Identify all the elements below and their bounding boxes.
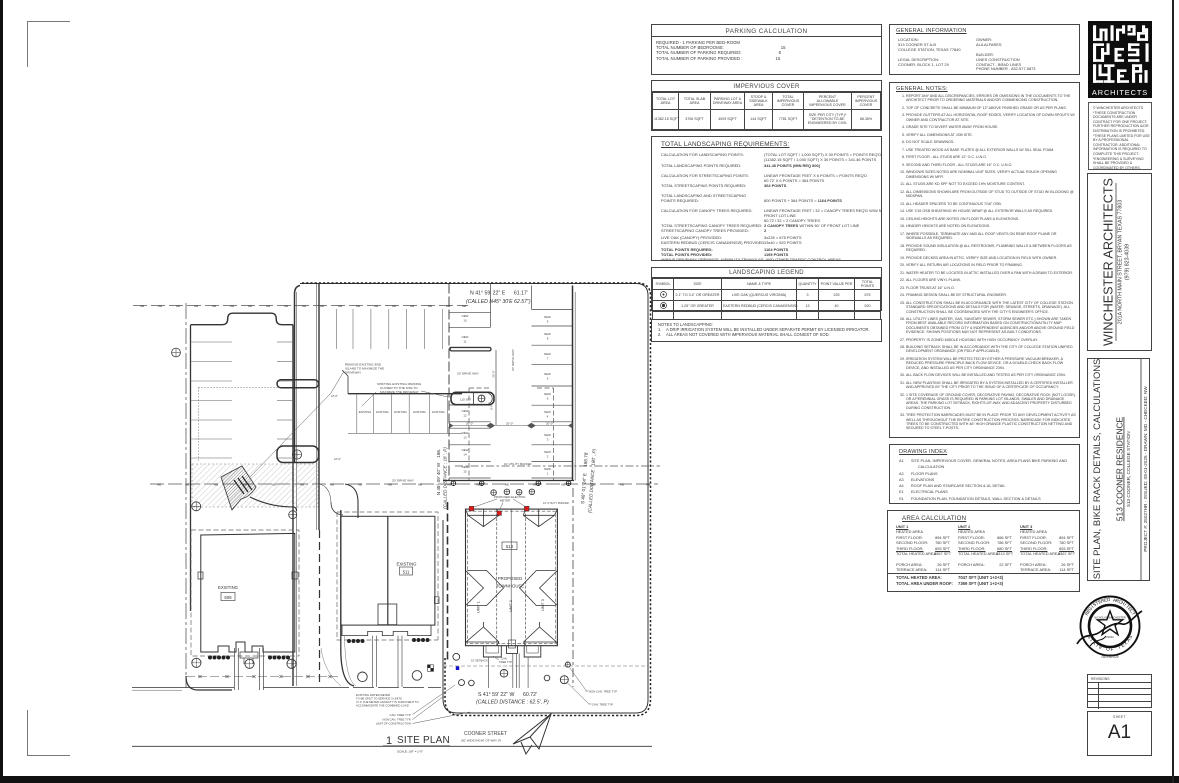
svg-text:CAN.: CAN.: [501, 657, 508, 661]
svg-text:EXISTING: EXISTING: [432, 410, 445, 414]
svg-text:20'-0": 20'-0": [492, 370, 496, 377]
svg-text:18'-0": 18'-0": [331, 394, 339, 398]
svg-text:NON CAN. TREE TYP.: NON CAN. TREE TYP.: [589, 690, 618, 694]
svg-text:UNIT 1: UNIT 1: [477, 601, 481, 613]
svg-text:513: 513: [506, 544, 514, 549]
svg-text:AE: AE: [157, 483, 161, 487]
svg-text:NEW: NEW: [462, 409, 469, 413]
svg-text:AE: AE: [505, 483, 509, 487]
svg-text:4: 4: [547, 415, 549, 419]
svg-text:NEW: NEW: [462, 448, 469, 452]
svg-text:AE: AE: [302, 304, 306, 308]
svg-text:NEW: NEW: [544, 372, 551, 376]
svg-text:AE: AE: [374, 304, 378, 308]
svg-text:NEW: NEW: [462, 431, 469, 435]
svg-text:AE: AE: [428, 304, 432, 308]
svg-text:10: 10: [463, 319, 467, 323]
svg-text:6: 6: [547, 377, 549, 381]
svg-text:NEW: NEW: [462, 465, 469, 469]
svg-text:PROPOSED: PROPOSED: [498, 576, 522, 581]
svg-text:20' DRIVE WAY: 20' DRIVE WAY: [457, 372, 479, 376]
svg-text:S: S: [1128, 634, 1134, 639]
svg-text:NICHOLAS WINCHESTER: NICHOLAS WINCHESTER: [1094, 616, 1126, 620]
svg-text:201A NORTH MAIN STREET, BRYAN: 201A NORTH MAIN STREET, BRYAN TEXAS 7780…: [1118, 200, 1124, 324]
svg-text:15' SETBACK: 15' SETBACK: [471, 658, 488, 662]
svg-text:NEW: NEW: [544, 315, 551, 319]
svg-text:EXISTING: EXISTING: [218, 585, 239, 590]
svg-text:18'-0": 18'-0": [334, 457, 342, 461]
svg-text:AE: AE: [320, 304, 324, 308]
svg-text:S 41° 59' 22" W 60.72': S 41° 59' 22" W 60.72': [478, 692, 537, 698]
svg-text:AE: AE: [446, 304, 450, 308]
svg-text:20'-0": 20'-0": [506, 422, 513, 426]
svg-text:(CALLED DISTANCE : 180' , P): (CALLED DISTANCE : 180' , P): [587, 448, 597, 513]
svg-text:513 COONER RESIDENCE: 513 COONER RESIDENCE: [1115, 416, 1125, 521]
svg-text:TOWNHOUSE: TOWNHOUSE: [496, 584, 524, 589]
svg-text:EXISTING: EXISTING: [376, 410, 389, 414]
svg-text:UNIT 3: UNIT 3: [541, 599, 545, 611]
svg-text:EXISTING: EXISTING: [394, 410, 407, 414]
svg-text:8: 8: [547, 337, 549, 341]
svg-text:AE: AE: [388, 483, 392, 487]
svg-text:UNIT 2: UNIT 2: [509, 600, 513, 612]
svg-text:NEW: NEW: [462, 314, 469, 318]
svg-text:AE: AE: [243, 483, 247, 487]
svg-text:AE: AE: [476, 483, 480, 487]
svg-text:EXISTING: EXISTING: [396, 562, 417, 567]
svg-text:21643: 21643: [1106, 635, 1114, 639]
svg-text:NEW: NEW: [544, 392, 551, 396]
svg-text:NEW: NEW: [544, 410, 551, 414]
svg-text:AE: AE: [140, 304, 144, 308]
svg-text:AE: AE: [356, 304, 360, 308]
svg-text:AE: AE: [214, 483, 218, 487]
svg-text:AE: AE: [392, 304, 396, 308]
svg-text:15: 15: [463, 470, 467, 474]
svg-text:(979) 823-4039: (979) 823-4039: [1125, 244, 1131, 280]
svg-text:WINCHESTER ARCHITECTS: WINCHESTER ARCHITECTS: [1102, 178, 1116, 346]
svg-text:AE: AE: [330, 483, 334, 487]
svg-text:AE: AE: [358, 483, 362, 487]
svg-text:AE: AE: [284, 304, 288, 308]
svg-text:3: 3: [547, 438, 549, 442]
svg-text:EXISTING: EXISTING: [413, 410, 426, 414]
svg-text:ACCOMMODATE THE COMBINED LOAD: ACCOMMODATE THE COMBINED LOAD: [356, 703, 409, 707]
svg-text:AE: AE: [176, 304, 180, 308]
svg-text:E: E: [1098, 644, 1103, 650]
svg-text:1: 1: [386, 735, 392, 747]
svg-text:511: 511: [403, 570, 410, 575]
svg-text:1: 1: [547, 472, 549, 476]
svg-text:AE: AE: [533, 483, 537, 487]
svg-text:EXISTING: EXISTING: [359, 410, 372, 414]
svg-text:110 SFT: 110 SFT: [460, 398, 471, 402]
svg-text:AE: AE: [300, 483, 304, 487]
svg-text:NEW: NEW: [544, 467, 551, 471]
svg-text:METER: METER: [500, 499, 510, 503]
svg-text:N 41° 59' 22" E 61.17': N 41° 59' 22" E 61.17': [470, 291, 528, 297]
svg-text:13: 13: [463, 436, 467, 440]
svg-text:TREE TYP.: TREE TYP.: [499, 660, 513, 664]
svg-text:9'-0": 9'-0": [490, 404, 494, 410]
svg-text:AE: AE: [266, 304, 270, 308]
svg-text:9: 9: [547, 320, 549, 324]
svg-text:5: 5: [547, 397, 549, 401]
svg-text:(CALLED N45° 30'E 62.57"): (CALLED N45° 30'E 62.57"): [466, 299, 531, 305]
svg-text:AE: AE: [185, 483, 189, 487]
svg-text:PROJECT #: 25027HR - IS: PROJECT #: 25027HR - ISSUED: 08-01-2025 …: [1143, 386, 1148, 552]
svg-text:AE: AE: [194, 304, 198, 308]
svg-text:AE: AE: [410, 304, 414, 308]
svg-text:COONER STREET: COONER STREET: [464, 731, 507, 737]
svg-text:NEW: NEW: [544, 352, 551, 356]
svg-text:20'-0": 20'-0": [546, 422, 553, 426]
svg-text:(50' WIDE RIGHT OF WAY, P): (50' WIDE RIGHT OF WAY, P): [461, 739, 501, 743]
svg-text:CAN. TREE TYP.: CAN. TREE TYP.: [592, 703, 614, 707]
svg-text:20' DRIVE WAY: 20' DRIVE WAY: [511, 349, 515, 371]
svg-text:14: 14: [463, 453, 467, 457]
svg-text:11: 11: [463, 340, 466, 344]
svg-text:08/01/2025: 08/01/2025: [1102, 655, 1119, 659]
svg-text:SCALE: 1/8" = 1'-0": SCALE: 1/8" = 1'-0": [397, 750, 423, 754]
svg-text:AE: AE: [338, 304, 342, 308]
svg-text:AE: AE: [561, 483, 565, 487]
svg-text:513 COONER, COLLEGE STATION: 513 COONER, COLLEGE STATION: [1126, 431, 1131, 506]
svg-text:2: 2: [547, 455, 549, 459]
svg-text:AE: AE: [272, 483, 276, 487]
svg-text:(CALLED DISTANCE : 18 ', P): (CALLED DISTANCE : 18 ', P): [443, 447, 448, 509]
svg-text:DRIVEWAY: DRIVEWAY: [345, 371, 361, 375]
svg-text:AE: AE: [212, 304, 216, 308]
svg-text:AE: AE: [418, 483, 422, 487]
svg-text:SITE PLAN, BIKE RACK DETAILS,: SITE PLAN, BIKE RACK DETAILS, CALCULATIO…: [1091, 359, 1102, 580]
svg-text:AE: AE: [158, 304, 162, 308]
svg-text:D: D: [1107, 597, 1111, 602]
svg-text:12' UTILITY BUFFER: 12' UTILITY BUFFER: [543, 501, 569, 505]
svg-text:AE: AE: [230, 304, 234, 308]
svg-text:NEW: NEW: [462, 335, 469, 339]
svg-text:12: 12: [463, 414, 467, 418]
svg-text:509: 509: [224, 595, 232, 600]
svg-text:LIMIT OF CONSTRUCTION: LIMIT OF CONSTRUCTION: [376, 721, 411, 725]
svg-text:MAXIMIZE THE DRIVEWAY: MAXIMIZE THE DRIVEWAY: [380, 390, 419, 394]
svg-text:NEW: NEW: [544, 332, 551, 336]
svg-text:NEW: NEW: [544, 450, 551, 454]
svg-text:N 48° 09' 40" W 186.: N 48° 09' 40" W 186.: [436, 449, 441, 495]
svg-text:AE: AE: [248, 304, 252, 308]
svg-text:20' DRIVE WAY: 20' DRIVE WAY: [392, 479, 414, 483]
svg-text:20'-0": 20'-0": [466, 422, 473, 426]
svg-text:SITE PLAN: SITE PLAN: [397, 735, 450, 746]
svg-text:AE: AE: [447, 483, 451, 487]
svg-text:AE: AE: [646, 483, 650, 487]
svg-text:NEW: NEW: [544, 433, 551, 437]
svg-text:10' UTILITY BUFFER: 10' UTILITY BUFFER: [504, 462, 532, 466]
svg-text:AE: AE: [620, 483, 624, 487]
svg-text:(CALLED DISTANCE : 62.5', P): (CALLED DISTANCE : 62.5', P): [476, 700, 549, 706]
svg-text:7: 7: [547, 357, 549, 361]
